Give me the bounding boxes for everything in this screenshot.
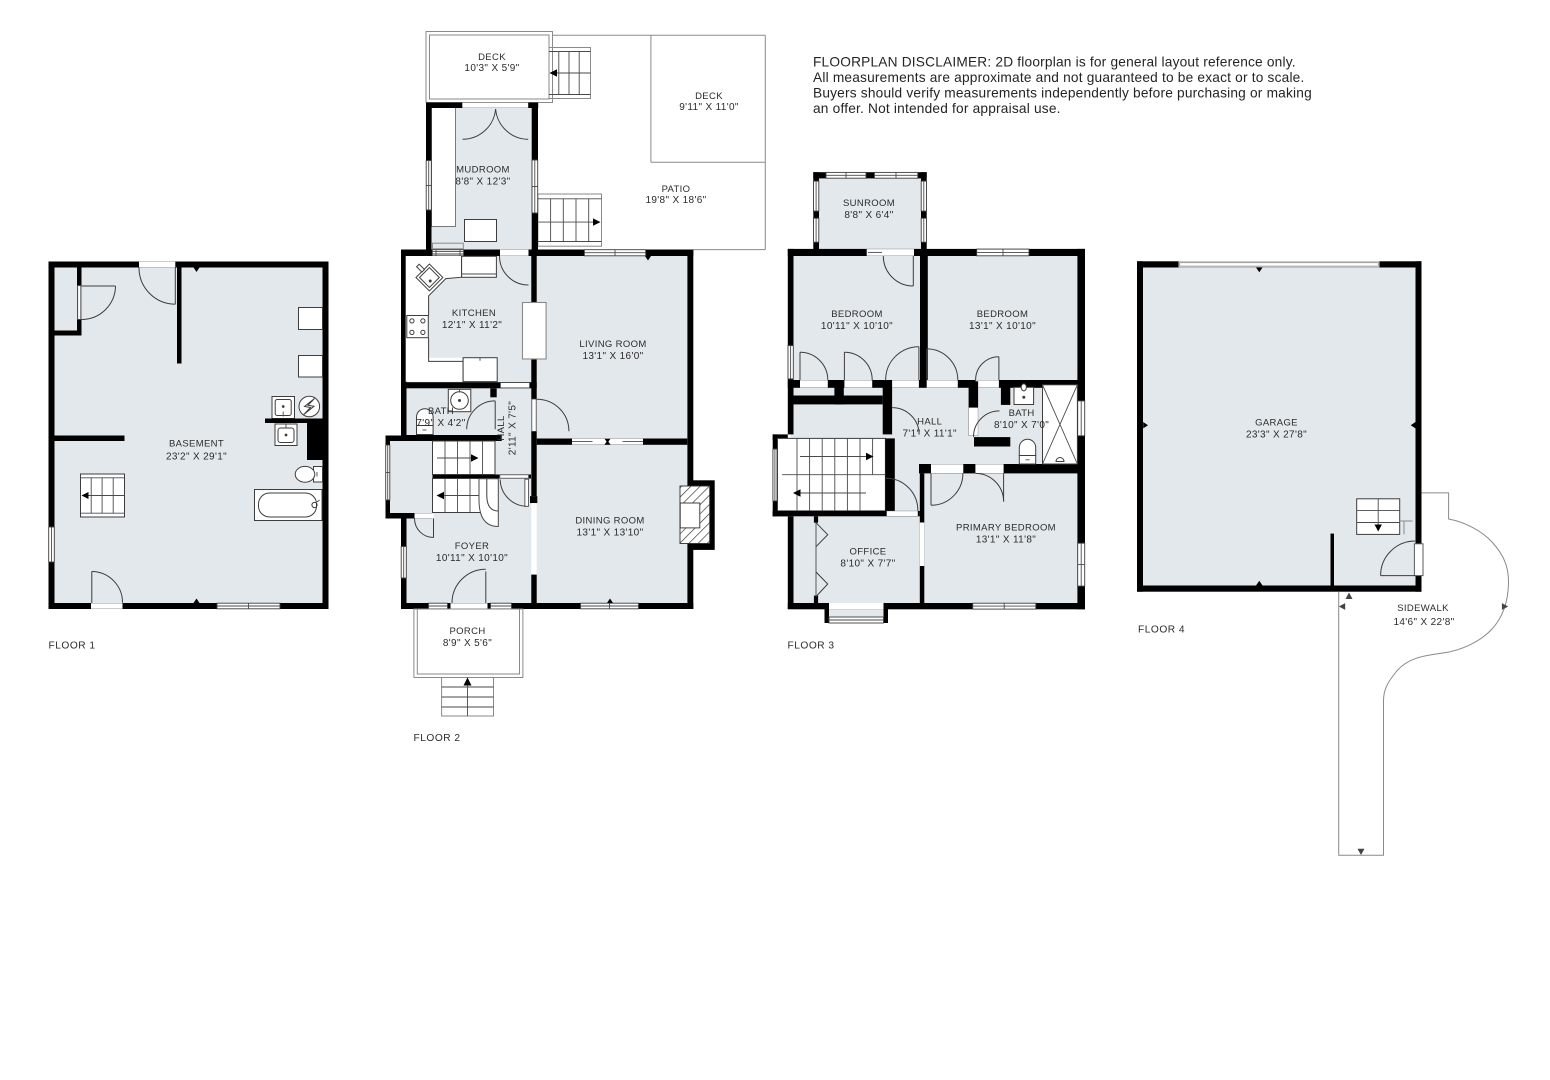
svg-text:PATIO: PATIO: [662, 184, 691, 195]
svg-text:Buyers should verify measureme: Buyers should verify measurements indepe…: [813, 86, 1312, 101]
svg-text:KITCHEN: KITCHEN: [452, 308, 496, 319]
svg-text:BASEMENT: BASEMENT: [169, 439, 224, 450]
svg-text:12'1" X 11'2": 12'1" X 11'2": [442, 320, 502, 331]
svg-text:8'9" X 5'6": 8'9" X 5'6": [443, 638, 492, 649]
svg-text:23'2" X 29'1": 23'2" X 29'1": [166, 452, 227, 463]
svg-text:FLOOR 2: FLOOR 2: [414, 733, 461, 744]
svg-text:BATH: BATH: [1009, 408, 1035, 419]
svg-text:PORCH: PORCH: [449, 626, 485, 637]
svg-text:9'11" X 11'0": 9'11" X 11'0": [679, 102, 739, 113]
svg-text:HALL: HALL: [917, 417, 942, 428]
svg-text:10'11" X 10'10": 10'11" X 10'10": [821, 321, 893, 332]
svg-text:an offer. Not intended for app: an offer. Not intended for appraisal use…: [813, 101, 1061, 116]
svg-text:FOYER: FOYER: [455, 541, 489, 552]
svg-text:10'11" X 10'10": 10'11" X 10'10": [436, 553, 508, 564]
svg-text:All measurements are approxima: All measurements are approximate and not…: [813, 70, 1305, 85]
svg-text:SUNROOM: SUNROOM: [843, 198, 895, 209]
svg-text:7'9" X 4'2": 7'9" X 4'2": [416, 418, 465, 429]
svg-text:14'6" X 22'8": 14'6" X 22'8": [1393, 617, 1454, 628]
svg-text:8'10" X 7'0": 8'10" X 7'0": [994, 420, 1049, 431]
svg-text:10'3" X 5'9": 10'3" X 5'9": [464, 63, 519, 74]
svg-text:19'8" X 18'6": 19'8" X 18'6": [645, 195, 706, 206]
svg-text:BEDROOM: BEDROOM: [977, 309, 1029, 320]
svg-text:13'1" X 13'10": 13'1" X 13'10": [577, 528, 644, 539]
svg-text:FLOOR 4: FLOOR 4: [1138, 625, 1185, 636]
svg-text:BATH: BATH: [428, 406, 454, 417]
svg-text:FLOOR 1: FLOOR 1: [49, 641, 96, 652]
svg-text:HALL: HALL: [496, 415, 507, 440]
svg-text:PRIMARY BEDROOM: PRIMARY BEDROOM: [956, 523, 1056, 534]
svg-text:8'8" X 12'3": 8'8" X 12'3": [455, 177, 510, 188]
svg-text:23'3" X 27'8": 23'3" X 27'8": [1246, 430, 1307, 441]
svg-text:13'1" X 11'8": 13'1" X 11'8": [976, 535, 1036, 546]
svg-text:DECK: DECK: [478, 52, 506, 63]
svg-text:SIDEWALK: SIDEWALK: [1397, 603, 1449, 614]
svg-text:FLOORPLAN DISCLAIMER: 2D floor: FLOORPLAN DISCLAIMER: 2D floorplan is fo…: [813, 55, 1296, 70]
svg-text:13'1" X 16'0": 13'1" X 16'0": [582, 351, 643, 362]
svg-text:MUDROOM: MUDROOM: [456, 165, 510, 176]
svg-text:8'10" X 7'7": 8'10" X 7'7": [840, 559, 895, 570]
svg-text:7'1" X 11'1": 7'1" X 11'1": [902, 429, 957, 440]
svg-text:FLOOR 3: FLOOR 3: [788, 641, 835, 652]
svg-text:2'11" X 7'5": 2'11" X 7'5": [508, 401, 519, 456]
svg-text:BEDROOM: BEDROOM: [831, 309, 883, 320]
svg-text:DINING ROOM: DINING ROOM: [575, 516, 644, 527]
svg-text:8'8" X 6'4": 8'8" X 6'4": [844, 210, 893, 221]
svg-text:DECK: DECK: [695, 91, 723, 102]
svg-text:LIVING ROOM: LIVING ROOM: [579, 339, 646, 350]
svg-text:OFFICE: OFFICE: [850, 547, 887, 558]
svg-text:GARAGE: GARAGE: [1255, 418, 1298, 429]
svg-text:13'1" X 10'10": 13'1" X 10'10": [969, 321, 1036, 332]
